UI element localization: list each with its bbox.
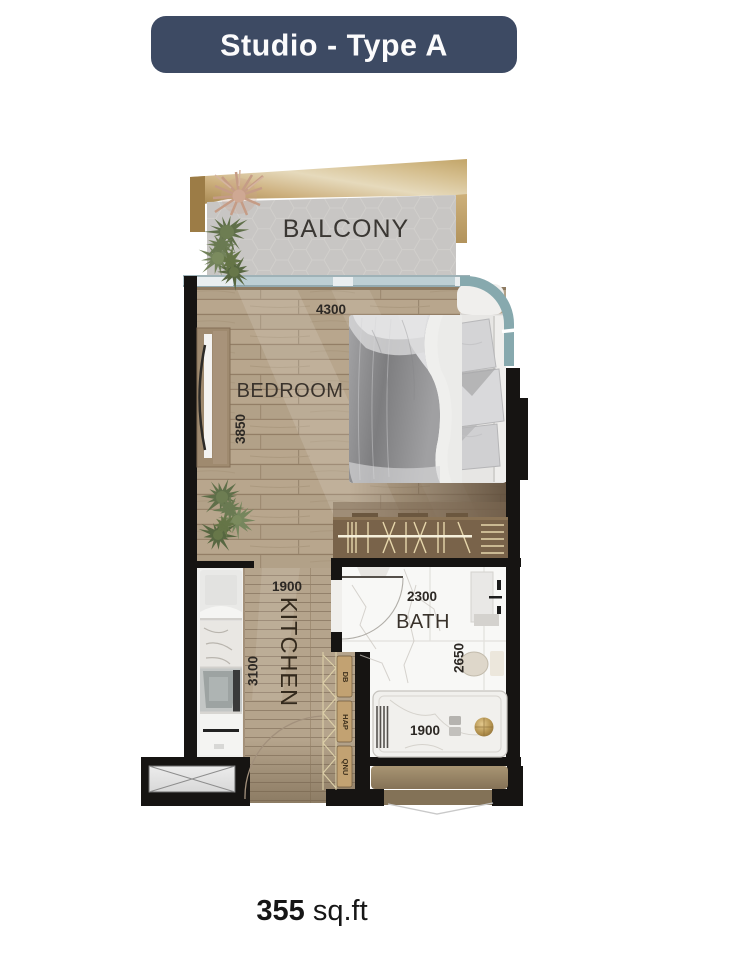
svg-text:3100: 3100 xyxy=(246,656,261,686)
svg-text:Studio - Type A: Studio - Type A xyxy=(220,29,448,63)
svg-text:HAP: HAP xyxy=(341,714,350,730)
svg-text:2650: 2650 xyxy=(452,643,467,673)
svg-text:3850: 3850 xyxy=(233,414,248,444)
svg-text:BATH: BATH xyxy=(396,611,450,633)
svg-text:BALCONY: BALCONY xyxy=(283,215,409,243)
svg-text:DB: DB xyxy=(341,672,350,683)
svg-text:KITCHEN: KITCHEN xyxy=(276,597,302,707)
svg-text:355 sq.ft: 355 sq.ft xyxy=(256,895,367,927)
svg-text:QNU: QNU xyxy=(341,759,350,776)
svg-text:1900: 1900 xyxy=(272,579,302,594)
svg-text:2300: 2300 xyxy=(407,589,437,604)
svg-text:BEDROOM: BEDROOM xyxy=(237,380,344,402)
svg-text:1900: 1900 xyxy=(410,723,440,738)
svg-text:4300: 4300 xyxy=(316,302,346,317)
